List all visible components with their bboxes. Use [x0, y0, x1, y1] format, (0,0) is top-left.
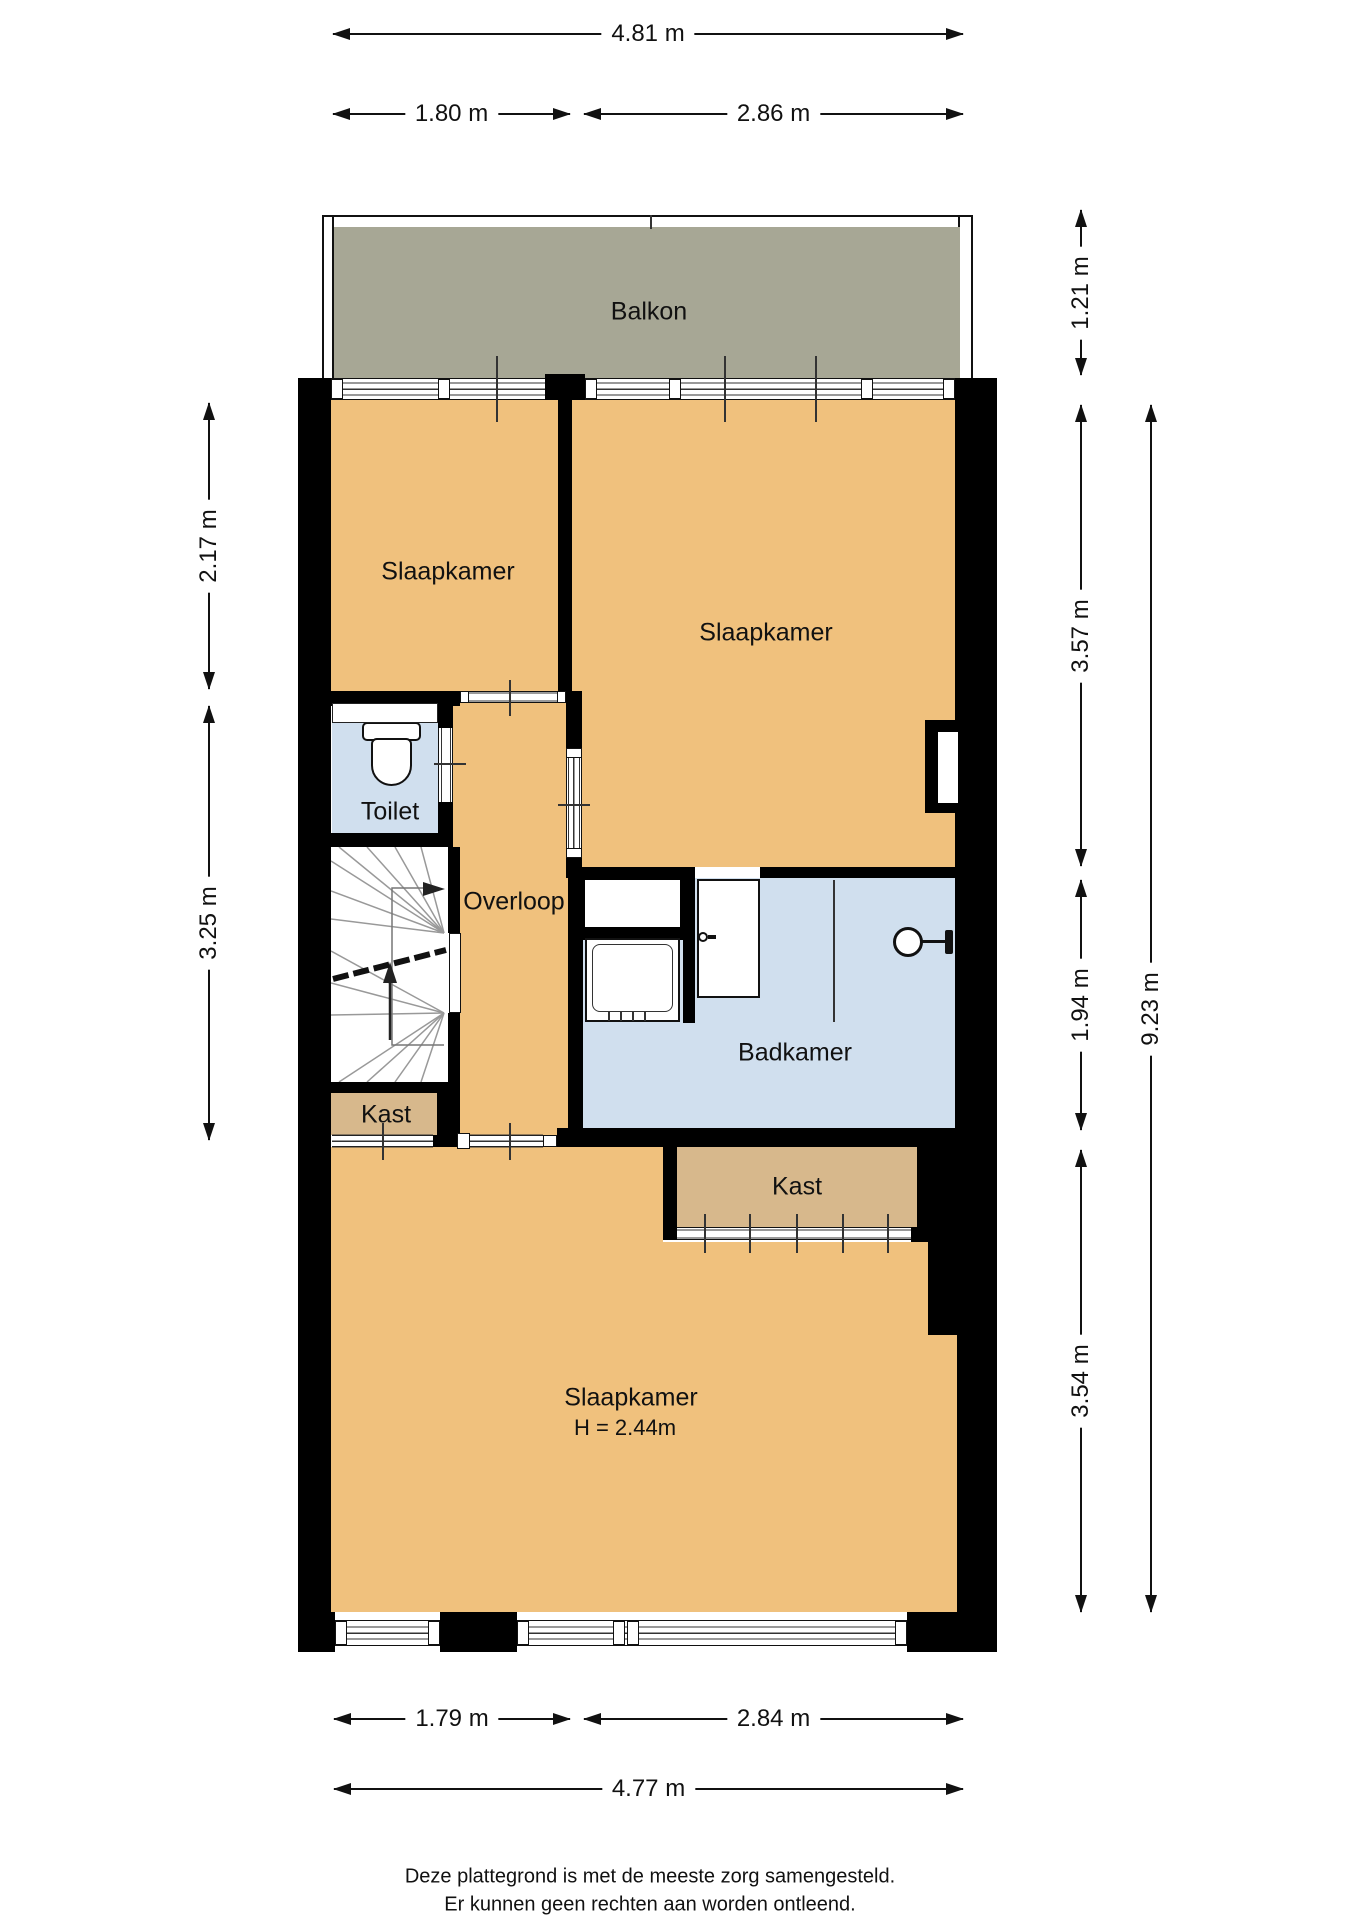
wall-bottom-pier-right: [907, 1612, 997, 1652]
wall-kast1-right: [437, 1093, 460, 1135]
dim-label: 2.84 m: [727, 1705, 820, 1733]
door-stairs: [449, 933, 461, 1013]
wall-exterior-right-upper: [955, 378, 997, 1133]
room-slaapkamer-beneden-b: [663, 1242, 928, 1612]
door-cap: [566, 748, 582, 758]
toilet-bowl-icon: [371, 738, 412, 786]
wall-bedroom2-bottom-right: [760, 867, 955, 878]
band-kast1-endcap: [543, 1135, 557, 1147]
wall-window-pier-top: [545, 374, 585, 400]
dim-rechts-balkon: 1.21 m: [1080, 210, 1082, 375]
door-badkamer-opening: [697, 867, 760, 878]
reference-tick: [434, 763, 466, 765]
band-kast1-pier: [433, 1135, 457, 1147]
band-kast1-glazing-right: [470, 1135, 543, 1148]
toilet-cabinet: [332, 703, 438, 723]
window-mullion: [438, 379, 450, 399]
dim-rechts-onder: 3.54 m: [1080, 1150, 1082, 1612]
door-toilet: [438, 728, 453, 802]
staircase-drawing: [331, 847, 448, 1082]
dim-onder-totaal: 4.77 m: [334, 1788, 963, 1790]
shower-glass-screen: [833, 880, 835, 1022]
window-cap: [331, 379, 343, 399]
window-bottom-right: [517, 1620, 907, 1646]
dim-label: 3.54 m: [1067, 1334, 1095, 1427]
window-cap: [585, 379, 597, 399]
room-label-balkon: Balkon: [611, 298, 687, 327]
room-label-slaapkamer-linksboven: Slaapkamer: [381, 558, 514, 587]
wall-kast2-left: [663, 1140, 677, 1240]
room-label-hoogte: H = 2.44m: [574, 1415, 676, 1441]
dim-label: 9.23 m: [1137, 962, 1165, 1055]
drain-line: [644, 1012, 646, 1021]
disclaimer-line-2: Er kunnen geen rechten aan worden ontlee…: [444, 1894, 855, 1917]
dim-label: 3.57 m: [1067, 589, 1095, 682]
wall-badkamer-left: [568, 878, 583, 1147]
band-kast2-sliding-doors: [677, 1227, 911, 1240]
balcony-railing-divider: [650, 215, 652, 229]
drain-line: [632, 1012, 634, 1021]
room-label-overloop: Overloop: [463, 888, 564, 917]
window-cap: [895, 1621, 907, 1645]
kast2-door-tick: [796, 1214, 798, 1253]
dim-links-boven: 2.17 m: [208, 403, 210, 689]
window-cap: [943, 379, 955, 399]
staircase: [331, 847, 448, 1082]
window-cap: [517, 1621, 529, 1645]
dim-links-onder: 3.25 m: [208, 706, 210, 1140]
window-cap: [335, 1621, 347, 1645]
wall-exterior-right-lower: [957, 1335, 997, 1652]
balcony-railing-left: [322, 215, 334, 380]
kast2-door-tick: [887, 1214, 889, 1253]
wall-stairs-bottom: [331, 1082, 460, 1093]
door-cap: [566, 848, 582, 858]
dim-label: 2.17 m: [195, 499, 223, 592]
dim-label: 1.80 m: [405, 100, 498, 128]
reference-tick: [509, 680, 511, 716]
wall-exterior-right-mid: [928, 1242, 997, 1335]
window-mullion: [627, 1621, 639, 1645]
window-bedroom2-top: [585, 378, 955, 400]
room-label-slaapkamer-beneden: Slaapkamer: [564, 1384, 697, 1413]
room-overloop: [453, 703, 568, 1135]
room-label-slaapkamer-rechtsboven: Slaapkamer: [699, 619, 832, 648]
door-overloop-bedroom2: [566, 758, 582, 848]
drain-line: [608, 1012, 610, 1021]
dim-onder-rechts: 2.84 m: [584, 1718, 963, 1720]
dim-label: 4.81 m: [601, 20, 694, 48]
dim-top-rechts: 2.86 m: [584, 113, 963, 115]
window-mullion: [669, 379, 681, 399]
window-bottom-left: [335, 1620, 440, 1646]
window-cap: [428, 1621, 440, 1645]
wall-stairs-right-b: [448, 1013, 460, 1093]
dim-label: 1.21 m: [1067, 246, 1095, 339]
wall-exterior-left: [298, 378, 331, 1652]
room-label-badkamer: Badkamer: [738, 1039, 852, 1068]
room-label-toilet: Toilet: [361, 798, 419, 827]
shower-head-icon: [893, 927, 923, 957]
room-slaapkamer-beneden-c: [928, 1335, 957, 1612]
wall-stairs-right-a: [448, 847, 460, 933]
badkamer-niche: [585, 880, 680, 927]
dim-rechts-midden: 1.94 m: [1080, 880, 1082, 1130]
kast2-door-tick: [749, 1214, 751, 1253]
reference-tick: [815, 356, 817, 422]
dim-label: 1.79 m: [405, 1705, 498, 1733]
dim-rechts-boven: 3.57 m: [1080, 405, 1082, 866]
reference-tick: [496, 356, 498, 422]
room-slaapkamer-linksboven: [331, 400, 558, 691]
dim-label: 4.77 m: [602, 1775, 695, 1803]
dim-top-links: 1.80 m: [333, 113, 570, 115]
band-kast1-door: [457, 1133, 470, 1149]
window-mullion: [613, 1621, 625, 1645]
floorplan-canvas: Balkon Slaapkamer Slaapkamer Toilet Over…: [0, 0, 1358, 1920]
room-slaapkamer-beneden-a: [331, 1147, 663, 1612]
shower-bracket-icon: [945, 930, 953, 954]
dim-label: 1.94 m: [1067, 958, 1095, 1051]
drain-line: [620, 1012, 622, 1021]
window-cap: [460, 691, 469, 703]
door-handle-icon: [708, 935, 716, 939]
room-label-kast-slaapkamer: Kast: [772, 1173, 822, 1202]
bedroom2-niche: [938, 732, 958, 803]
wall-between-bedrooms: [558, 400, 572, 691]
disclaimer-line-1: Deze plattegrond is met de meeste zorg s…: [405, 1866, 895, 1889]
reference-tick: [558, 804, 590, 806]
kast2-door-tick: [842, 1214, 844, 1253]
window-cap: [557, 691, 566, 703]
wall-kast2-notch: [911, 1227, 928, 1242]
dim-label: 2.86 m: [727, 100, 820, 128]
reference-tick: [509, 1123, 511, 1160]
dim-rechts-totaal: 9.23 m: [1150, 405, 1152, 1612]
wall-toilet-bottom: [331, 833, 453, 847]
wall-shower-stub: [683, 940, 695, 1023]
reference-tick: [724, 356, 726, 422]
wall-badkamer-bottom: [557, 1128, 955, 1147]
dim-top-totaal: 4.81 m: [333, 33, 963, 35]
balcony-railing-right: [958, 215, 973, 380]
wall-toilet-right-a: [438, 703, 453, 728]
kast2-door-tick: [704, 1214, 706, 1253]
dim-label: 3.25 m: [195, 876, 223, 969]
dim-onder-links: 1.79 m: [334, 1718, 570, 1720]
wall-bottom-pier-middle: [440, 1612, 517, 1652]
room-label-kast-overloop: Kast: [361, 1101, 411, 1130]
window-mullion: [861, 379, 873, 399]
transom-overloop: [460, 691, 566, 703]
door-handle-icon: [698, 932, 708, 942]
shower-tray-inner: [592, 944, 673, 1012]
